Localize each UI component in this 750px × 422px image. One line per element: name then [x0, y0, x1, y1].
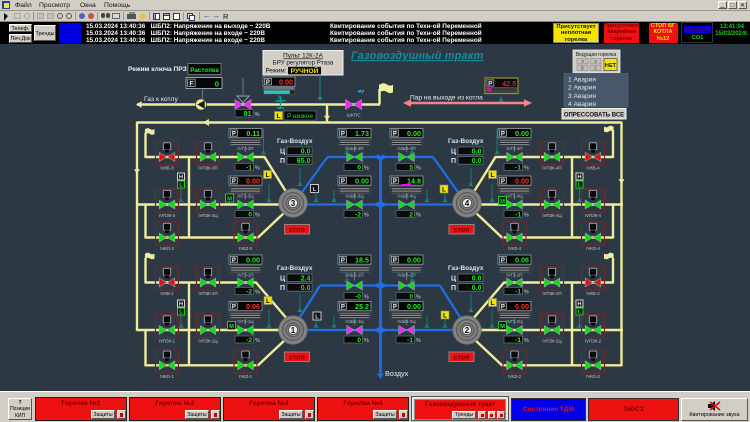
- svg-text:%: %: [524, 338, 529, 344]
- svg-text:Растопка: Растопка: [190, 67, 219, 74]
- svg-text:IVКБ-3: IVКБ-3: [160, 166, 174, 171]
- svg-text:IVКЗ-4: IVКЗ-4: [508, 246, 522, 251]
- svg-text:H: H: [179, 301, 183, 307]
- svg-text:IVГЗ-3Ц: IVГЗ-3Ц: [237, 194, 254, 199]
- svg-text:Р: Р: [232, 179, 236, 185]
- svg-text:%: %: [524, 213, 529, 219]
- svg-text:Р: Р: [232, 305, 236, 311]
- svg-text:IVШВ-1Ц: IVШВ-1Ц: [345, 319, 364, 324]
- svg-text:IVПЗК-1П: IVПЗК-1П: [198, 291, 217, 296]
- svg-text:П: П: [451, 285, 456, 292]
- svg-text:-1: -1: [246, 164, 252, 171]
- svg-text:IVПЗК-1Ц: IVПЗК-1Ц: [198, 339, 218, 344]
- svg-text:ШКПС: ШКПС: [346, 113, 361, 119]
- svg-text:Б: Б: [581, 66, 584, 71]
- svg-text:IVПЗК-2: IVПЗК-2: [585, 339, 602, 344]
- svg-text:L: L: [490, 300, 494, 307]
- svg-text:Р: Р: [232, 132, 236, 138]
- svg-text:Ц: Ц: [280, 275, 286, 282]
- svg-text:25.2: 25.2: [355, 302, 369, 311]
- svg-text:%: %: [255, 290, 260, 296]
- svg-text:L: L: [490, 172, 494, 179]
- svg-text:L: L: [265, 172, 269, 179]
- svg-text:IVПЗК-3: IVПЗК-3: [159, 213, 176, 218]
- svg-text:IVПЗК-4П: IVПЗК-4П: [542, 166, 561, 171]
- svg-text:Р: Р: [488, 81, 492, 87]
- svg-text:Ц: Ц: [451, 148, 457, 155]
- svg-text:42.5: 42.5: [501, 79, 517, 88]
- svg-text:0.00: 0.00: [279, 78, 293, 87]
- svg-text:НЕТ: НЕТ: [605, 63, 617, 69]
- svg-text:5: 5: [409, 164, 413, 171]
- svg-text:0.06: 0.06: [246, 302, 260, 311]
- svg-text:L: L: [578, 182, 582, 188]
- svg-text:0.00: 0.00: [515, 302, 529, 311]
- svg-text:IVКЗ-1: IVКЗ-1: [239, 374, 253, 379]
- svg-text:IVГЗ-2Ц: IVГЗ-2Ц: [506, 319, 523, 324]
- svg-text:IVПЗК-3Ц: IVПЗК-3Ц: [198, 213, 218, 218]
- svg-text:%: %: [364, 213, 369, 219]
- svg-text:L: L: [315, 314, 319, 320]
- svg-text:L: L: [179, 182, 183, 188]
- svg-text:%: %: [416, 166, 421, 172]
- svg-text:1 Авария: 1 Авария: [568, 77, 596, 84]
- svg-text:П: П: [451, 158, 456, 165]
- svg-text:%: %: [416, 295, 421, 301]
- svg-text:Режим ключа ПРЗ:: Режим ключа ПРЗ:: [128, 66, 189, 73]
- svg-text:-0: -0: [355, 293, 361, 300]
- svg-text:Режим:: Режим:: [266, 68, 287, 75]
- svg-text:%: %: [416, 338, 421, 344]
- svg-text:IVПЗК-3П: IVПЗК-3П: [198, 166, 217, 171]
- svg-text:Р: Р: [393, 132, 397, 138]
- svg-text:4: 4: [465, 199, 470, 208]
- svg-text:2: 2: [409, 211, 413, 218]
- svg-text:0.0: 0.0: [301, 285, 311, 292]
- svg-text:Р: Р: [341, 179, 345, 185]
- svg-text:%: %: [255, 112, 260, 118]
- svg-text:18.5: 18.5: [355, 256, 369, 265]
- svg-text:IVПЗК-4Ц: IVПЗК-4Ц: [542, 213, 562, 218]
- svg-text:0: 0: [248, 211, 252, 218]
- svg-text:ОПРЕССОВАТЬ ВСЕ: ОПРЕССОВАТЬ ВСЕ: [564, 112, 624, 118]
- svg-text:М: М: [229, 324, 234, 330]
- svg-text:81: 81: [244, 111, 252, 118]
- svg-text:L: L: [276, 113, 280, 120]
- svg-text:IVКО-3: IVКО-3: [160, 246, 174, 251]
- svg-text:Р низкое: Р низкое: [287, 113, 313, 120]
- svg-text:IVКБ-4: IVКБ-4: [586, 166, 600, 171]
- svg-text:Р: Р: [501, 132, 505, 138]
- svg-text:IVКО-2: IVКО-2: [586, 374, 600, 379]
- svg-text:IVКО-1: IVКО-1: [160, 374, 174, 379]
- svg-text:Газ-Воздух: Газ-Воздух: [277, 265, 313, 272]
- svg-text:%: %: [364, 295, 369, 301]
- svg-text:3: 3: [291, 199, 296, 208]
- svg-text:Газ-Воздух: Газ-Воздух: [448, 138, 484, 145]
- svg-text:П: П: [280, 158, 285, 165]
- svg-text:%: %: [416, 213, 421, 219]
- svg-text:L: L: [578, 309, 582, 315]
- svg-text:-1: -1: [515, 164, 521, 171]
- svg-text:Р: Р: [266, 80, 270, 86]
- svg-text:1.73: 1.73: [355, 129, 369, 138]
- svg-text:H: H: [577, 174, 581, 180]
- svg-text:IVКБ-2: IVКБ-2: [586, 291, 600, 296]
- svg-text:-1: -1: [515, 211, 521, 218]
- svg-text:стоп: стоп: [454, 354, 470, 361]
- svg-text:IVКЗ-3: IVКЗ-3: [239, 246, 253, 251]
- svg-text:IVПЗК-1: IVПЗК-1: [159, 339, 176, 344]
- svg-text:Р: Р: [341, 132, 345, 138]
- svg-text:-1: -1: [407, 337, 413, 344]
- svg-text:Р: Р: [501, 258, 505, 264]
- svg-text:Р: Р: [341, 258, 345, 264]
- svg-text:Пар на выходе из котла: Пар на выходе из котла: [410, 95, 483, 102]
- svg-text:Газ-Воздух: Газ-Воздух: [277, 138, 313, 145]
- svg-text:Ц: Ц: [451, 275, 457, 282]
- svg-text:стоп: стоп: [454, 227, 470, 234]
- svg-text:-2: -2: [355, 211, 361, 218]
- svg-text:му: му: [358, 90, 364, 95]
- svg-text:Р: Р: [501, 305, 505, 311]
- svg-text:0: 0: [215, 79, 219, 88]
- svg-text:М: М: [227, 196, 232, 202]
- svg-text:0.00: 0.00: [515, 177, 529, 186]
- svg-text:0.00: 0.00: [407, 302, 421, 311]
- svg-text:%: %: [364, 166, 369, 172]
- svg-text:0.0: 0.0: [472, 148, 482, 155]
- svg-text:IVКЗ-2: IVКЗ-2: [508, 374, 522, 379]
- svg-text:%: %: [364, 338, 369, 344]
- svg-text:Ц: Ц: [280, 148, 286, 155]
- svg-text:Газ-Воздух: Газ-Воздух: [448, 265, 484, 272]
- svg-text:Р: Р: [341, 305, 345, 311]
- svg-text:Р: Р: [501, 179, 505, 185]
- svg-text:F: F: [189, 81, 193, 88]
- svg-text:-2: -2: [246, 337, 252, 344]
- svg-text:Р: Р: [232, 258, 236, 264]
- svg-text:Газовоздушный тракт: Газовоздушный тракт: [351, 50, 484, 62]
- svg-text:IVПЗК-2П: IVПЗК-2П: [542, 291, 561, 296]
- svg-text:0.00: 0.00: [515, 129, 529, 138]
- svg-text:%: %: [524, 290, 529, 296]
- svg-text:%: %: [255, 338, 260, 344]
- svg-text:2 Авария: 2 Авария: [568, 85, 596, 92]
- svg-text:0: 0: [409, 293, 413, 300]
- svg-text:РУЧНОЙ: РУЧНОЙ: [291, 66, 319, 75]
- svg-text:%: %: [524, 166, 529, 172]
- svg-text:М: М: [500, 324, 505, 330]
- svg-text:1: 1: [291, 326, 296, 335]
- svg-text:стоп: стоп: [289, 354, 305, 361]
- svg-text:65.0: 65.0: [297, 158, 311, 165]
- svg-text:IVШВ-2Ц: IVШВ-2Ц: [397, 319, 416, 324]
- svg-text:L: L: [442, 186, 446, 193]
- svg-text:Р: Р: [393, 179, 397, 185]
- svg-text:L: L: [179, 309, 183, 315]
- svg-text:IVШВ-3Ц: IVШВ-3Ц: [345, 194, 364, 199]
- svg-text:0: 0: [357, 164, 361, 171]
- svg-text:0.0: 0.0: [472, 285, 482, 292]
- svg-text:-1: -1: [515, 337, 521, 344]
- svg-text:0.06: 0.06: [515, 256, 529, 265]
- svg-text:0.00: 0.00: [407, 256, 421, 265]
- svg-text:Газ к котлу: Газ к котлу: [144, 96, 178, 103]
- svg-text:0.00: 0.00: [407, 129, 421, 138]
- svg-text:0.00: 0.00: [355, 177, 369, 186]
- svg-text:IVКБ-1: IVКБ-1: [160, 291, 174, 296]
- svg-text:2: 2: [465, 326, 470, 335]
- svg-text:БРУ регулятор Ртаза: БРУ регулятор Ртаза: [273, 60, 334, 67]
- svg-text:L: L: [266, 298, 270, 305]
- svg-text:IVГЗ-4Ц: IVГЗ-4Ц: [506, 194, 523, 199]
- svg-text:Пульт 12К-2А: Пульт 12К-2А: [283, 53, 323, 60]
- svg-text:0.0: 0.0: [301, 148, 311, 155]
- svg-text:П: П: [280, 285, 285, 292]
- svg-text:-1: -1: [515, 288, 521, 295]
- svg-text:0.0: 0.0: [472, 158, 482, 165]
- svg-text:IVГЗ-1Ц: IVГЗ-1Ц: [237, 319, 254, 324]
- svg-text:0.0: 0.0: [472, 275, 482, 282]
- svg-text:H: H: [179, 174, 183, 180]
- svg-text:0.00: 0.00: [246, 177, 260, 186]
- svg-text:Р: Р: [393, 305, 397, 311]
- svg-text:IVПЗК-4: IVПЗК-4: [585, 213, 602, 218]
- svg-text:-2: -2: [246, 288, 252, 295]
- svg-text:М: М: [500, 199, 505, 205]
- svg-text:H: H: [577, 301, 581, 307]
- svg-text:2.4: 2.4: [301, 275, 311, 282]
- svg-text:4 Авария: 4 Авария: [568, 101, 596, 108]
- svg-text:0.11: 0.11: [246, 129, 260, 138]
- svg-text:стоп: стоп: [289, 227, 305, 234]
- svg-text:%: %: [255, 166, 260, 172]
- svg-text:0: 0: [357, 337, 361, 344]
- svg-text:IVПЗК-2Ц: IVПЗК-2Ц: [542, 339, 562, 344]
- svg-text:IVШВ-4Ц: IVШВ-4Ц: [397, 194, 416, 199]
- svg-text:Р: Р: [393, 258, 397, 264]
- svg-text:3 Авария: 3 Авария: [568, 93, 596, 100]
- svg-text:IVКО-4: IVКО-4: [586, 246, 600, 251]
- svg-text:Ведущая горелка: Ведущая горелка: [576, 52, 617, 58]
- svg-text:0.00: 0.00: [246, 256, 260, 265]
- svg-text:Воздух: Воздух: [385, 369, 409, 378]
- svg-text:%: %: [255, 213, 260, 219]
